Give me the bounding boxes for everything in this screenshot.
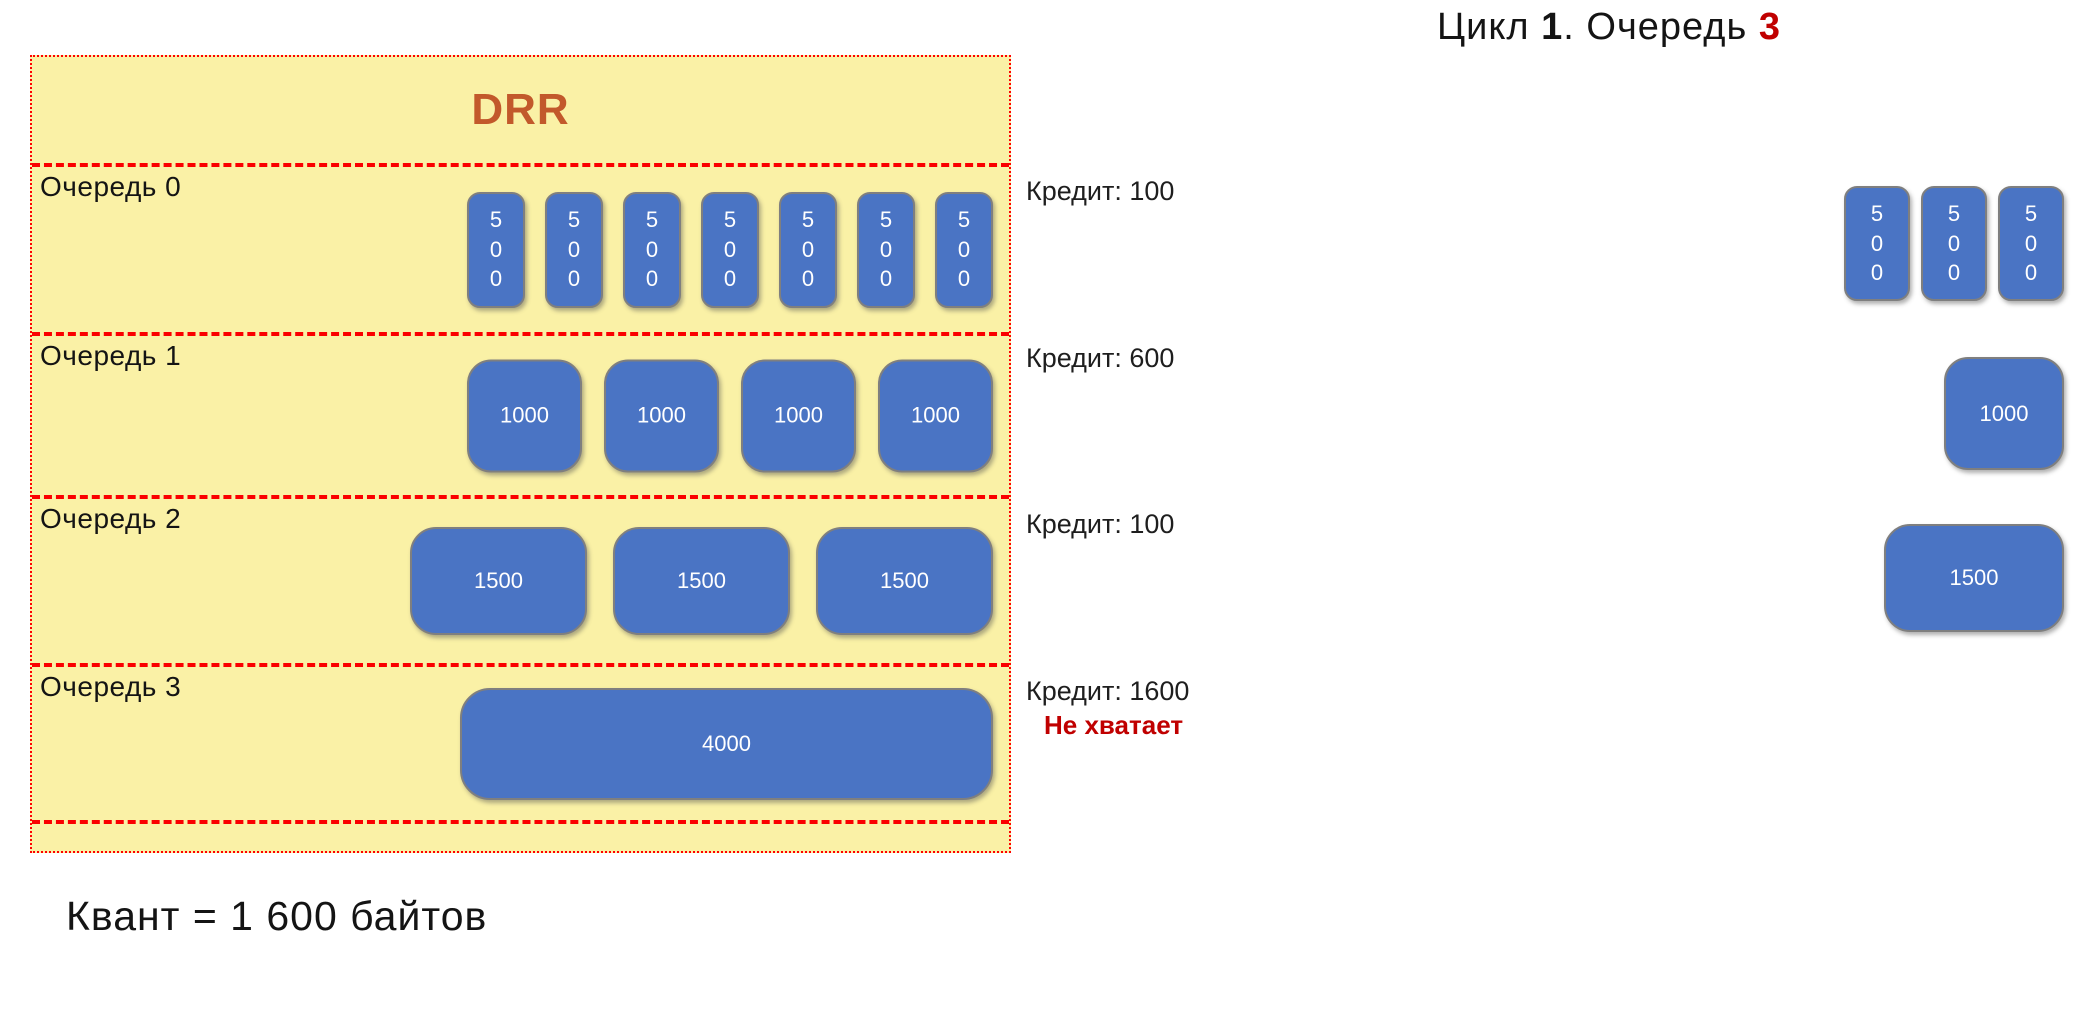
packet-size-label: 500: [955, 205, 974, 294]
queue-3-packets: 4000: [460, 688, 993, 800]
packet-4000: 4000: [460, 688, 993, 800]
drr-header: DRR: [32, 57, 1009, 163]
quantum-label: Квант = 1 600 байтов: [66, 893, 487, 940]
packet-500: 500: [623, 192, 681, 308]
packet-1000: 1000: [878, 359, 993, 472]
title-part: Цикл: [1437, 6, 1541, 48]
queue-row-3: Очередь 3 4000: [32, 663, 1009, 820]
queue-1-label: Очередь 1: [40, 340, 181, 372]
packet-size-label: 4000: [702, 731, 751, 757]
packet-size-label: 500: [643, 205, 662, 294]
queue-1-packets: 1000100010001000: [467, 359, 993, 472]
packet-1500: 1500: [613, 527, 790, 635]
packet-500: 500: [779, 192, 837, 308]
queue-row-2: Очередь 2 150015001500: [32, 495, 1009, 663]
output-packet-1000: 1000: [1944, 357, 2064, 470]
packet-500: 500: [857, 192, 915, 308]
packet-500: 500: [545, 192, 603, 308]
packet-size-label: 500: [2022, 199, 2041, 288]
queue-3-insufficient-note: Не хватает: [1044, 710, 1183, 741]
packet-size-label: 1500: [880, 568, 929, 594]
packet-size-label: 1500: [677, 568, 726, 594]
queue-1-credit: Кредит: 600: [1026, 343, 1174, 374]
drr-box: DRR Очередь 0 500500500500500500500 Очер…: [30, 55, 1011, 853]
page-title: Цикл 1. Очередь 3: [1437, 6, 1781, 49]
empty-bottom-strip: [32, 820, 1009, 851]
packet-1000: 1000: [741, 359, 856, 472]
packet-size-label: 500: [487, 205, 506, 294]
packet-1000: 1000: [467, 359, 582, 472]
packet-size-label: 500: [1868, 199, 1887, 288]
packet-size-label: 1000: [637, 403, 686, 429]
packet-size-label: 500: [799, 205, 818, 294]
packet-500: 500: [935, 192, 993, 308]
queue-row-0: Очередь 0 500500500500500500500: [32, 163, 1009, 332]
packet-size-label: 1000: [911, 403, 960, 429]
queue-2-credit: Кредит: 100: [1026, 509, 1174, 540]
packet-size-label: 1500: [474, 568, 523, 594]
queue-3-label: Очередь 3: [40, 671, 181, 703]
queue-3-credit: Кредит: 1600: [1026, 676, 1189, 707]
queue-row-1: Очередь 1 1000100010001000: [32, 332, 1009, 495]
packet-size-label: 1000: [1980, 401, 2029, 427]
packet-500: 500: [467, 192, 525, 308]
drr-title: DRR: [471, 85, 569, 135]
slide-canvas: Цикл 1. Очередь 3 DRR Очередь 0 50050050…: [0, 0, 2094, 1028]
packet-size-label: 1000: [774, 403, 823, 429]
packet-size-label: 500: [721, 205, 740, 294]
packet-size-label: 500: [1945, 199, 1964, 288]
packet-1500: 1500: [816, 527, 993, 635]
packet-500: 500: [701, 192, 759, 308]
packet-size-label: 1000: [500, 403, 549, 429]
packet-1500: 1500: [410, 527, 587, 635]
packet-size-label: 500: [565, 205, 584, 294]
queue-2-packets: 150015001500: [410, 527, 993, 635]
queue-0-credit: Кредит: 100: [1026, 176, 1174, 207]
packet-size-label: 1500: [1950, 565, 1999, 591]
title-part: . Очередь: [1563, 6, 1759, 48]
output-packet-500-2: 500: [1921, 186, 1987, 301]
queue-0-packets: 500500500500500500500: [467, 192, 993, 308]
queue-2-label: Очередь 2: [40, 503, 181, 535]
title-part: 3: [1759, 6, 1781, 48]
title-part: 1: [1541, 6, 1563, 48]
output-packet-500-1: 500: [1844, 186, 1910, 301]
packet-size-label: 500: [877, 205, 896, 294]
output-packet-500-3: 500: [1998, 186, 2064, 301]
queue-0-label: Очередь 0: [40, 171, 181, 203]
packet-1000: 1000: [604, 359, 719, 472]
output-packet-1500: 1500: [1884, 524, 2064, 632]
